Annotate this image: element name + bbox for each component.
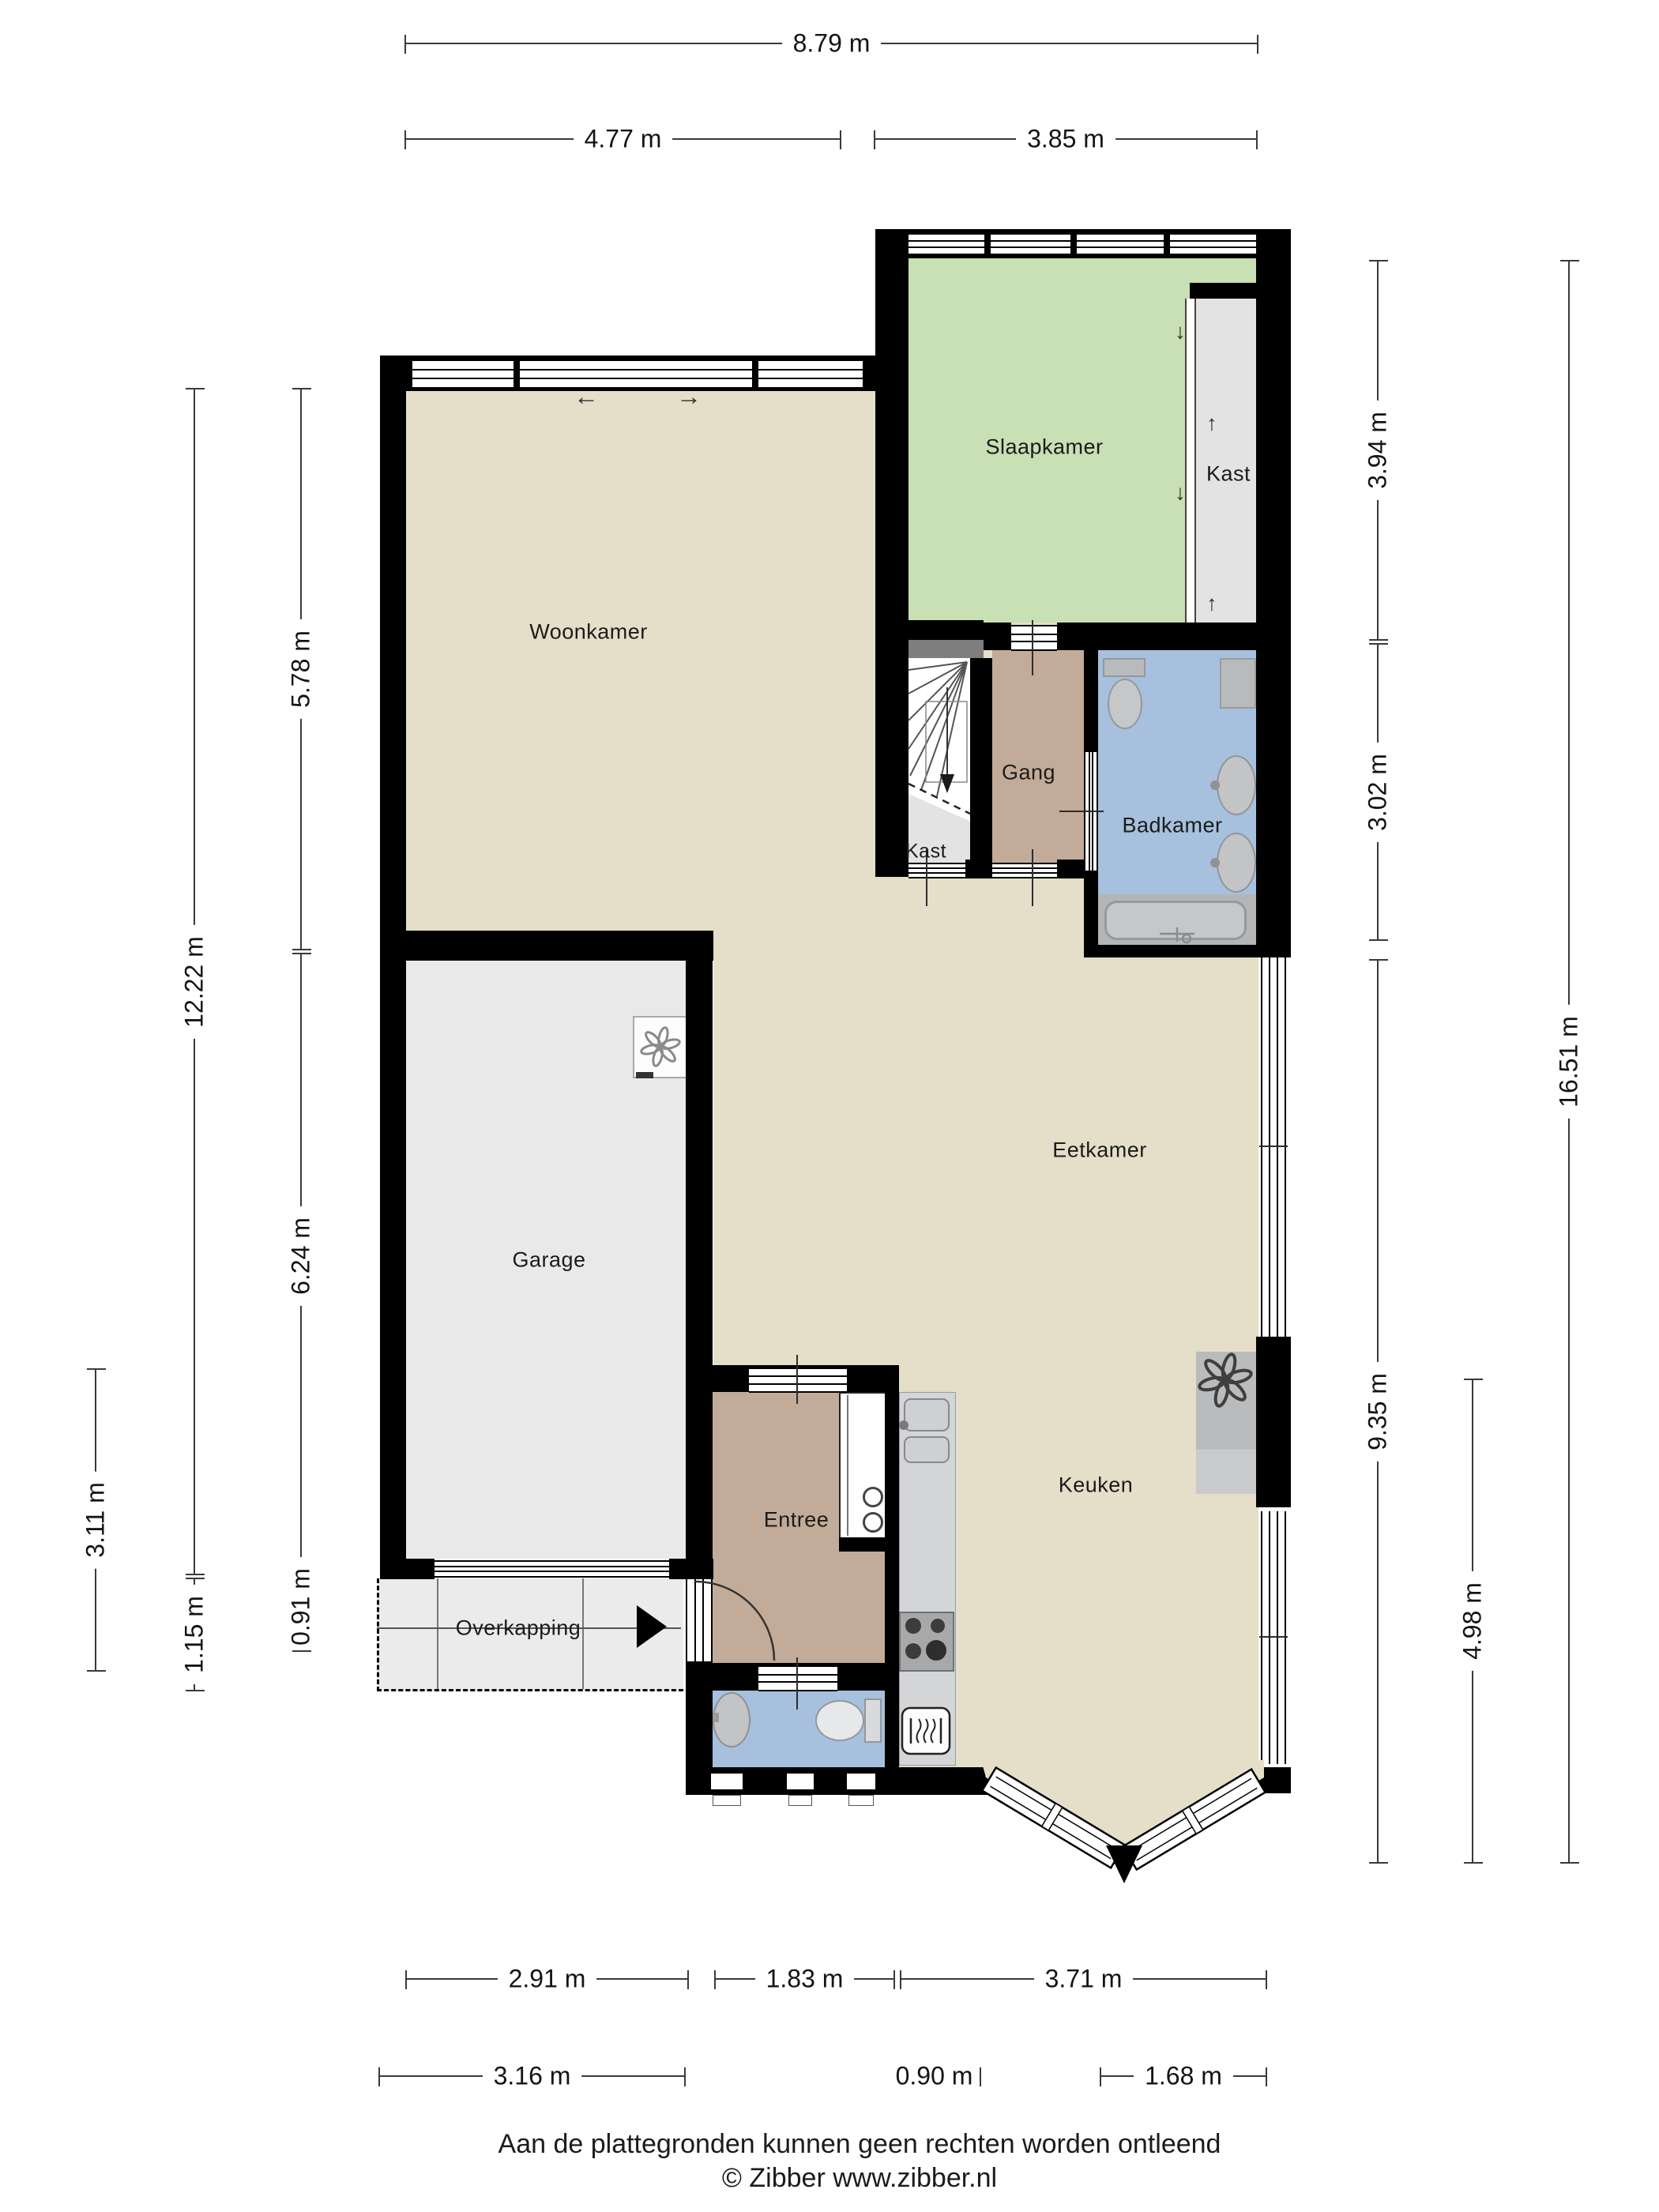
dimension-line: 12.22 m [194,389,195,1574]
burner-icon [926,1640,946,1661]
bay-floor [981,1760,1264,1861]
overkapping-post-line [437,1578,438,1689]
door-opening [992,863,1057,878]
dimension-line: 3.71 m [901,1978,1266,1980]
meter-icon [863,1512,883,1533]
hvac-tick [636,1072,653,1078]
wall-bay-corner-left [973,1767,997,1795]
bathtub-icon [1104,901,1247,940]
kitchen-island-top [1196,1352,1258,1450]
door-opening [1011,625,1057,651]
dimension-line: 5.78 m [300,389,302,950]
door-swing-line [796,1657,798,1710]
door-opening [758,1665,837,1691]
sliding-door-track [1185,299,1196,623]
room-label-kast-bedroom: Kast [1206,462,1251,487]
dimension-line: 3.16 m [379,2075,685,2077]
wall-kast-stub [1190,283,1256,299]
wall-badkamer-left [1084,650,1098,752]
dimension-line: 3.85 m [875,138,1257,140]
sliding-door-arrow-icon: ← [574,382,599,412]
sliding-door-arrow-icon: ↓ [1175,481,1186,506]
bath-counter [1220,658,1256,709]
door-swing-line [1059,811,1104,812]
room-label-keuken: Keuken [1059,1473,1134,1498]
kast-bedroom-floor [1194,299,1256,623]
kitchen-sink-icon [904,1398,950,1431]
window [908,233,1260,255]
toilet-icon [815,1700,864,1741]
faucet-icon [1210,781,1220,790]
dimension-line: 6.24 m [300,954,302,1559]
dimension-line: 9.35 m [1377,960,1379,1863]
dimension-line: 2.91 m [406,1978,688,1980]
window-frame [788,1795,812,1806]
window-mullion [984,233,991,255]
toilet-icon [1108,679,1142,729]
wall-garage-bottom [669,1559,713,1579]
window-mullion [1259,1636,1288,1638]
window-mullion [1259,1145,1288,1147]
window-mullion [513,359,520,389]
room-label-gang: Gang [1002,761,1055,785]
room-label-garage: Garage [512,1248,585,1273]
toilet-icon [1103,658,1145,677]
window [785,1772,815,1791]
wall-meter-stub [839,1537,886,1552]
overkapping-post-line [582,1578,584,1689]
sliding-door-arrow-icon: ↑ [1206,412,1217,436]
dimension-line: 1.83 m [715,1978,894,1980]
window [1261,1511,1286,1764]
wall-stairs-gang-divider [970,658,992,864]
dimension-line: 3.94 m [1377,261,1379,640]
room-label-kast-hall: Kast [905,841,946,863]
meter-cupboard-door [847,1395,848,1536]
sink-icon [1217,833,1256,893]
window-frame [713,1795,741,1806]
window [709,1772,744,1791]
dimension-line: 1.68 m [1100,2075,1266,2077]
bay-tip-post [1106,1845,1142,1883]
faucet-icon [1210,858,1220,867]
room-label-woonkamer: Woonkamer [529,620,648,645]
window-frame [848,1795,874,1806]
window-mullion [1070,233,1077,255]
wall-garage-bottom [380,1559,434,1579]
bay-window-right [1123,1770,1265,1870]
dimension-line: 8.79 m [405,43,1258,44]
room-label-badkamer: Badkamer [1122,814,1222,838]
burner-icon [931,1619,945,1633]
room-label-overkapping: Overkapping [456,1616,581,1641]
toilet-icon [864,1698,882,1743]
sliding-door-arrow-icon: ↑ [1206,592,1217,616]
floorplan-page: ← → ↓ ↑ ↓ ↑ Woonkamer Slaapkamer Kast Ga… [0,0,1659,2212]
door-swing-line [1032,620,1033,675]
sliding-door-arrow-icon: ↓ [1175,320,1186,344]
window-mullion [752,359,758,389]
kitchen-sink-icon [904,1436,950,1463]
wall-bedroomblock-left [875,229,908,877]
window [412,359,863,389]
dimension-line: 3.11 m [95,1369,96,1671]
copyright-text: © Zibber www.zibber.nl [722,2163,997,2194]
burner-icon [905,1618,921,1634]
dimension-line: 1.15 m [194,1578,195,1691]
room-label-entree: Entree [764,1508,829,1533]
dimension-line: 4.77 m [405,138,841,140]
door-swing-line [796,1355,798,1404]
wall-garage-right [686,931,713,1578]
stair-landing-strip [908,640,984,658]
wall-slaapkamer-bottom [1057,623,1256,650]
door-opening [908,863,965,878]
wall-badkamer-left [1084,871,1098,945]
wall-entree-kitchen [885,1392,899,1767]
wall-right-upper [1256,229,1291,957]
wall-right-mid [1256,1337,1291,1507]
wall-garage-top [380,931,713,961]
wall-bay-corner-right [1256,1767,1291,1793]
door-opening [749,1367,847,1393]
window [1261,957,1286,1337]
front-door-opening [686,1578,713,1661]
entrance-arrow-icon [637,1605,667,1648]
wall-slaapkamer-bottom [984,623,1011,650]
dimension-line: 16.51 m [1568,261,1570,1863]
dimension-line: 0.90 m [888,2075,980,2077]
window-mullion [1164,233,1170,255]
room-label-eetkamer: Eetkamer [1052,1138,1147,1163]
wall-badkamer-bottom [1084,945,1291,957]
window [845,1772,877,1791]
garage-window [434,1560,669,1578]
dimension-line: 4.98 m [1472,1379,1473,1863]
bay-window-left [982,1767,1124,1868]
wall-slaapkamer-bottom-stub [875,620,984,640]
dimension-line: 0.91 m [300,1563,302,1651]
wall-hall-bottom-pillar [965,860,992,878]
sliding-door-arrow-icon: → [676,382,702,412]
meter-icon [863,1487,883,1507]
faucet-icon [899,1420,908,1430]
room-label-slaapkamer: Slaapkamer [985,435,1103,460]
hvac-unit [633,1016,689,1078]
kitchen-island-bottom [1196,1450,1258,1494]
door-swing-line [1032,849,1033,906]
burner-icon [905,1643,921,1659]
sink-icon [1217,755,1256,815]
wall-left [380,355,406,1578]
dimension-line: 3.02 m [1377,644,1379,940]
disclaimer-text: Aan de plattegronden kunnen geen rechten… [498,2129,1221,2160]
gang-floor [992,650,1084,864]
wall-hall-bottom-end [1057,860,1084,878]
